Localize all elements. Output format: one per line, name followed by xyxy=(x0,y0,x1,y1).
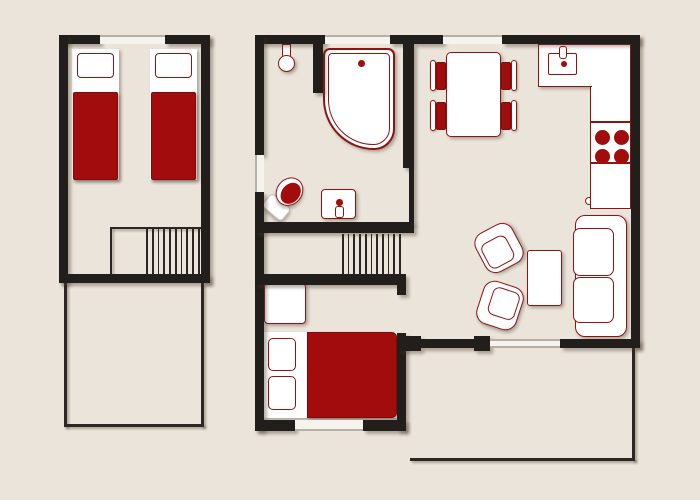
stairs-main-steps xyxy=(376,234,378,274)
sofa xyxy=(575,215,627,337)
kitchen-counter-side xyxy=(590,86,631,122)
stairs-main-steps xyxy=(393,234,395,274)
dining-chair-back xyxy=(511,100,517,131)
terrace-east-line xyxy=(632,348,635,461)
bathroom-sink-drain xyxy=(336,199,343,206)
dining-chair-back xyxy=(511,60,517,91)
sofa-cushion xyxy=(573,228,614,276)
stairs-upper-steps xyxy=(146,228,148,274)
kitchen-cabinet xyxy=(590,163,631,209)
dining-chair xyxy=(436,62,446,91)
stairs-upper-steps xyxy=(186,228,188,274)
stove-burner xyxy=(614,130,629,145)
coffee-table xyxy=(527,250,562,306)
stairs-main-steps xyxy=(359,234,361,274)
stairs-upper-outline-west xyxy=(110,227,112,274)
window-left-building-top xyxy=(100,35,165,44)
stairs-main-steps xyxy=(388,234,390,274)
stairs-upper-steps xyxy=(158,228,160,274)
twin-bed-2-pillow xyxy=(155,53,192,78)
bathtub-drain xyxy=(358,60,365,67)
wall-left-building-south xyxy=(59,274,210,283)
wall-bedroom-south-east xyxy=(363,420,406,431)
bathroom-sink-faucet xyxy=(335,206,344,218)
double-bed-pillow xyxy=(268,376,296,410)
dining-chair xyxy=(436,102,446,131)
stove-burner xyxy=(614,149,629,164)
kitchen-sink-drain xyxy=(561,61,567,67)
wall-left-building-east xyxy=(201,35,210,283)
window-bathroom-top xyxy=(325,35,390,44)
stairs-main-steps xyxy=(399,234,401,274)
wall-stairs-south xyxy=(255,274,406,285)
twin-bed-1-pillow xyxy=(77,53,114,78)
stairs-main-steps xyxy=(348,234,350,274)
stairs-main-steps xyxy=(353,234,355,274)
dining-chair-back xyxy=(430,100,436,131)
balcony-west-line xyxy=(64,283,67,427)
window-bathroom-west xyxy=(255,155,264,192)
stairs-upper-steps xyxy=(192,228,194,274)
wardrobe xyxy=(264,283,306,324)
dining-chair xyxy=(501,102,511,131)
wall-living-south-east xyxy=(560,339,640,348)
bathtub-rim xyxy=(328,53,390,145)
bathtub xyxy=(323,48,395,150)
wall-shower-stub xyxy=(313,44,323,93)
sofa-cushion xyxy=(573,277,614,323)
stairs-upper-steps xyxy=(163,228,165,274)
terrace-south-line xyxy=(410,458,635,461)
stairs-main-steps xyxy=(342,234,344,274)
kitchen-faucet xyxy=(559,46,567,59)
stove xyxy=(590,122,631,163)
dining-chair xyxy=(501,62,511,91)
stairs-main-steps xyxy=(365,234,367,274)
balcony-south-line xyxy=(64,424,204,427)
twin-bed-2-blanket xyxy=(151,92,196,180)
wall-bath-kitchen-divider xyxy=(403,44,414,168)
wall-bath-south xyxy=(255,222,414,233)
bathroom-sink xyxy=(321,189,356,219)
stove-burner xyxy=(595,149,610,164)
wall-living-south-nub-west xyxy=(397,336,421,351)
stairs-upper-steps xyxy=(169,228,171,274)
wall-living-south-nub-east xyxy=(474,336,490,351)
shower-head xyxy=(278,55,295,72)
armchair-2 xyxy=(473,278,527,334)
stairs-upper-steps xyxy=(198,228,200,274)
floor-plan xyxy=(0,0,700,500)
wall-main-top-3 xyxy=(502,35,640,44)
double-bed-blanket xyxy=(307,332,397,418)
dining-chair-back xyxy=(430,60,436,91)
twin-bed-1-blanket xyxy=(73,92,118,180)
window-living-south xyxy=(490,339,560,348)
balcony-east-line xyxy=(201,283,204,427)
wall-main-top-2 xyxy=(390,35,443,44)
wall-main-west-upper xyxy=(255,35,264,155)
wall-left-building-west xyxy=(59,35,68,283)
wall-bedroom-south-west xyxy=(255,420,295,431)
kitchen-counter-joint xyxy=(592,85,630,89)
toilet xyxy=(260,171,310,223)
toilet-seat xyxy=(276,179,305,208)
stove-burner xyxy=(595,130,610,145)
wall-bath-kitchen-thin xyxy=(409,168,414,224)
wall-main-east xyxy=(631,35,640,348)
double-bed-pillow xyxy=(268,338,296,371)
wall-main-top-1 xyxy=(255,35,325,44)
stairs-upper-steps xyxy=(175,228,177,274)
stairs-main-steps xyxy=(382,234,384,274)
wall-living-south-door xyxy=(420,339,475,348)
window-bedroom-south xyxy=(295,420,363,431)
stairs-upper-steps xyxy=(181,228,183,274)
armchair-1 xyxy=(470,219,528,278)
window-kitchen-top xyxy=(443,35,502,44)
dining-table xyxy=(446,52,501,137)
stairs-main-steps xyxy=(371,234,373,274)
stairs-upper-steps xyxy=(152,228,154,274)
wall-bedroom-east-stub xyxy=(397,285,406,295)
